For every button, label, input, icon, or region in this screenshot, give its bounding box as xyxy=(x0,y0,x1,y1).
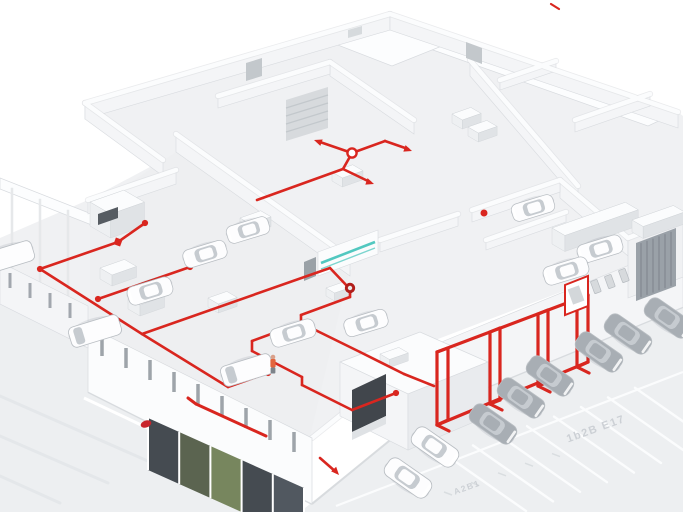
facade-slit-window xyxy=(196,384,200,404)
facade-slit-window xyxy=(268,420,272,440)
hose-reel-center xyxy=(348,286,352,290)
pipe-end-dot xyxy=(95,296,101,302)
person-torso xyxy=(270,359,275,368)
pipe-end-dot xyxy=(142,220,148,226)
person-head xyxy=(271,355,276,360)
pipe-end-dot xyxy=(393,390,399,396)
scene-canvas: 1b2B E17 A2B1 xyxy=(0,0,683,512)
facade-slit-window xyxy=(220,396,224,416)
person-figure xyxy=(270,355,275,374)
person-legs xyxy=(271,368,276,374)
colonnade-slit-window xyxy=(49,293,52,308)
isometric-building-rendering: 1b2B E17 A2B1 xyxy=(0,0,683,512)
pipe-junction-ring xyxy=(347,148,356,157)
facade-slit-window xyxy=(292,432,296,452)
colonnade-slit-window xyxy=(9,273,12,288)
facade-slit-window xyxy=(172,372,176,392)
pipe-end-dot xyxy=(37,266,43,272)
colonnade-slit-window xyxy=(29,283,32,298)
colonnade-slit-window xyxy=(69,303,72,318)
facade-slit-window xyxy=(148,360,152,380)
facade-slit-window xyxy=(124,348,128,368)
red-wall-marker xyxy=(481,210,488,217)
